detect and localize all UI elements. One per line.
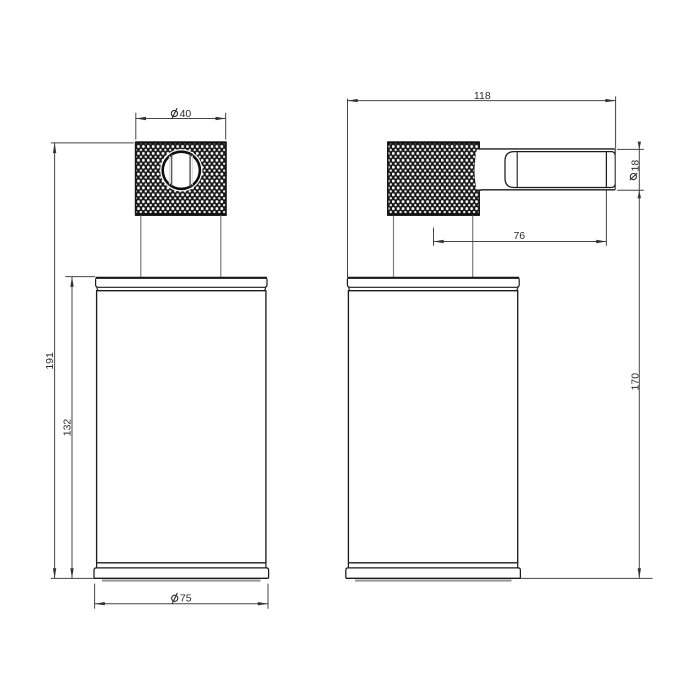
svg-text:76: 76 [513, 230, 525, 242]
svg-text:191: 191 [44, 352, 56, 370]
svg-text:40: 40 [180, 108, 192, 120]
svg-text:170: 170 [629, 373, 641, 391]
svg-text:118: 118 [474, 90, 491, 102]
svg-text:132: 132 [61, 419, 73, 437]
svg-text:75: 75 [180, 593, 192, 605]
svg-text:18: 18 [629, 160, 641, 172]
